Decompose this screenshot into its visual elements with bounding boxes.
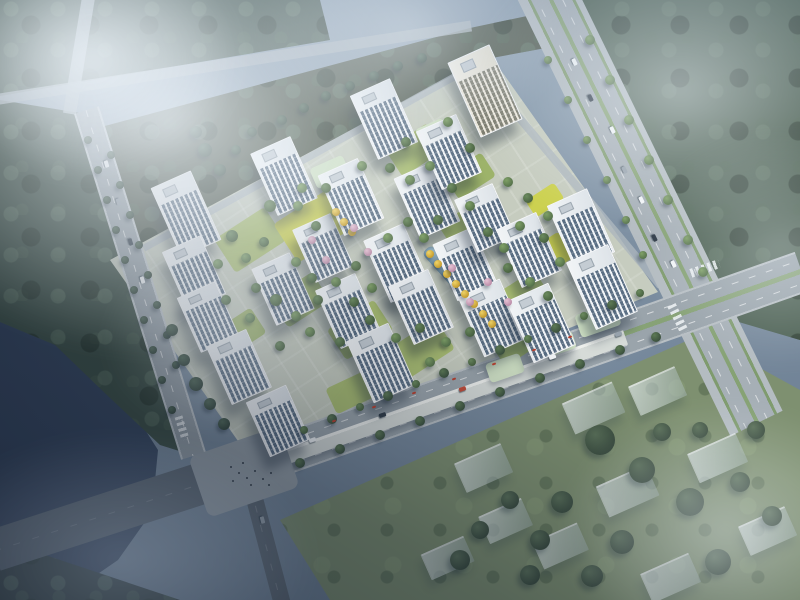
tree xyxy=(340,218,348,226)
tree xyxy=(622,216,630,224)
tree xyxy=(241,253,251,263)
tree xyxy=(247,127,257,137)
tree xyxy=(295,458,305,468)
tree xyxy=(331,277,341,287)
rooftop-unit xyxy=(578,258,595,272)
tree xyxy=(365,315,375,325)
tree xyxy=(168,406,176,414)
tree xyxy=(126,211,134,219)
tree xyxy=(651,332,661,342)
tree xyxy=(335,337,345,347)
tree xyxy=(357,161,367,171)
tree xyxy=(218,418,230,430)
tree xyxy=(153,301,161,309)
rooftop-unit xyxy=(329,171,345,184)
tree xyxy=(483,227,493,237)
pedestrian xyxy=(230,466,232,468)
tree xyxy=(189,377,203,391)
tree xyxy=(443,117,453,127)
tree xyxy=(479,310,487,318)
tree xyxy=(499,243,509,253)
tree xyxy=(369,71,379,81)
pedestrian xyxy=(254,470,256,472)
rooftop-unit xyxy=(326,286,342,299)
pedestrian xyxy=(270,472,272,474)
tree xyxy=(307,273,317,283)
rooftop-unit xyxy=(427,127,443,140)
rooftop-unit xyxy=(460,59,477,73)
tree xyxy=(300,426,308,434)
tree xyxy=(523,193,533,203)
tree xyxy=(465,327,475,337)
aerial-rendering xyxy=(0,0,800,600)
tree xyxy=(403,217,413,227)
tree xyxy=(705,549,731,575)
rooftop-unit xyxy=(262,149,278,162)
tree xyxy=(603,176,611,184)
tree xyxy=(520,565,540,585)
rooftop-unit xyxy=(162,184,178,198)
tree xyxy=(116,181,124,189)
tree xyxy=(503,177,513,187)
tree xyxy=(551,491,573,513)
tree xyxy=(585,35,595,45)
tree xyxy=(264,200,276,212)
tree xyxy=(121,256,129,264)
tree xyxy=(391,333,401,343)
tree xyxy=(107,151,115,159)
tree xyxy=(297,183,307,193)
tree xyxy=(311,221,321,231)
tree xyxy=(130,286,138,294)
tree xyxy=(698,267,708,277)
tree xyxy=(441,337,451,347)
tree xyxy=(214,164,226,176)
tree xyxy=(425,357,435,367)
tree xyxy=(581,565,603,587)
tree xyxy=(525,277,535,287)
rooftop-unit xyxy=(217,342,233,355)
tree xyxy=(564,96,572,104)
tree xyxy=(447,183,457,193)
tree xyxy=(543,211,553,221)
tree xyxy=(488,320,496,328)
tree xyxy=(259,237,269,247)
pedestrian xyxy=(262,478,264,480)
tree xyxy=(450,550,470,570)
tree xyxy=(305,327,315,337)
tree xyxy=(607,300,617,310)
tree xyxy=(401,137,411,147)
tree xyxy=(468,358,476,366)
tree xyxy=(636,289,644,297)
rooftop-unit xyxy=(173,248,188,260)
tree xyxy=(385,163,395,173)
tree xyxy=(544,56,552,64)
tree xyxy=(663,195,673,205)
tree xyxy=(364,248,372,256)
tree xyxy=(178,354,190,366)
tree xyxy=(471,521,489,539)
tree xyxy=(332,208,340,216)
tree xyxy=(383,391,393,401)
pedestrian xyxy=(250,484,252,486)
tree xyxy=(551,323,561,333)
tree xyxy=(417,53,427,63)
tree xyxy=(277,115,287,125)
tree xyxy=(605,75,615,85)
rooftop-unit xyxy=(518,296,534,309)
tree xyxy=(503,263,513,273)
tree xyxy=(226,230,238,242)
tree xyxy=(190,126,202,138)
tree xyxy=(112,226,120,234)
tree xyxy=(231,145,241,155)
rooftop-unit xyxy=(188,293,203,305)
tree xyxy=(419,233,429,243)
tree xyxy=(84,136,92,144)
pedestrian xyxy=(232,480,234,482)
tree xyxy=(465,143,475,153)
tree xyxy=(144,271,152,279)
tree xyxy=(575,359,585,369)
tree xyxy=(555,257,565,267)
tree xyxy=(313,295,323,305)
tree xyxy=(762,506,782,526)
tree xyxy=(308,236,316,244)
tree xyxy=(383,233,393,243)
tree xyxy=(730,472,750,492)
rooftop-unit xyxy=(444,239,460,252)
tree xyxy=(158,376,166,384)
tree xyxy=(166,324,178,336)
tree xyxy=(585,425,615,455)
rooftop-unit xyxy=(399,282,415,295)
tree xyxy=(321,91,331,101)
tree xyxy=(299,103,309,113)
tree xyxy=(515,221,525,231)
tree xyxy=(291,311,301,321)
tree xyxy=(149,346,157,354)
tree xyxy=(425,161,435,171)
tree xyxy=(350,224,358,232)
tree xyxy=(293,201,303,211)
tree xyxy=(501,491,519,509)
tree xyxy=(683,235,693,245)
tree xyxy=(610,530,634,554)
tree xyxy=(465,201,475,211)
tree xyxy=(653,423,671,441)
tree xyxy=(530,530,550,550)
tree xyxy=(245,313,255,323)
tree xyxy=(624,115,634,125)
tree xyxy=(349,297,359,307)
tree xyxy=(135,241,143,249)
tree xyxy=(375,430,385,440)
rooftop-unit xyxy=(262,264,277,276)
tree xyxy=(321,183,331,193)
rooftop-unit xyxy=(558,201,574,214)
tree xyxy=(644,155,654,165)
tree xyxy=(415,323,425,333)
tree xyxy=(291,257,301,267)
tree xyxy=(140,316,148,324)
tree xyxy=(504,298,512,306)
tree xyxy=(198,143,212,157)
tree xyxy=(426,250,434,258)
tree xyxy=(676,488,704,516)
tree xyxy=(439,368,449,378)
tree xyxy=(351,261,361,271)
tree xyxy=(747,421,765,439)
tree xyxy=(405,175,415,185)
tree xyxy=(535,373,545,383)
tree xyxy=(583,136,591,144)
tree xyxy=(543,291,553,301)
tree xyxy=(213,259,223,269)
tree xyxy=(322,256,330,264)
tree xyxy=(345,81,355,91)
tree xyxy=(275,341,285,351)
tree xyxy=(94,166,102,174)
tree xyxy=(393,61,403,71)
tree xyxy=(692,422,708,438)
tree xyxy=(461,290,469,298)
tree xyxy=(495,387,505,397)
tree xyxy=(251,283,261,293)
tree xyxy=(455,401,465,411)
tree xyxy=(356,403,364,411)
pedestrian xyxy=(268,484,270,486)
rooftop-unit xyxy=(361,91,377,104)
tree xyxy=(415,416,425,426)
tree xyxy=(412,380,420,388)
tree xyxy=(433,215,443,225)
tree xyxy=(466,298,474,306)
tree xyxy=(452,280,460,288)
tree xyxy=(580,312,588,320)
pedestrian xyxy=(246,477,248,479)
rooftop-unit xyxy=(358,336,374,349)
pedestrian xyxy=(242,462,244,464)
tree xyxy=(434,260,442,268)
tree xyxy=(270,294,282,306)
tree xyxy=(639,251,647,259)
tree xyxy=(524,335,532,343)
tree xyxy=(539,233,549,243)
tree xyxy=(495,345,505,355)
tree xyxy=(367,283,377,293)
tree xyxy=(629,457,655,483)
tree xyxy=(615,345,625,355)
pedestrian xyxy=(238,472,240,474)
tree xyxy=(204,398,216,410)
tree xyxy=(448,264,456,272)
tree xyxy=(221,295,231,305)
tree xyxy=(103,196,111,204)
tree xyxy=(335,444,345,454)
tree xyxy=(484,278,492,286)
